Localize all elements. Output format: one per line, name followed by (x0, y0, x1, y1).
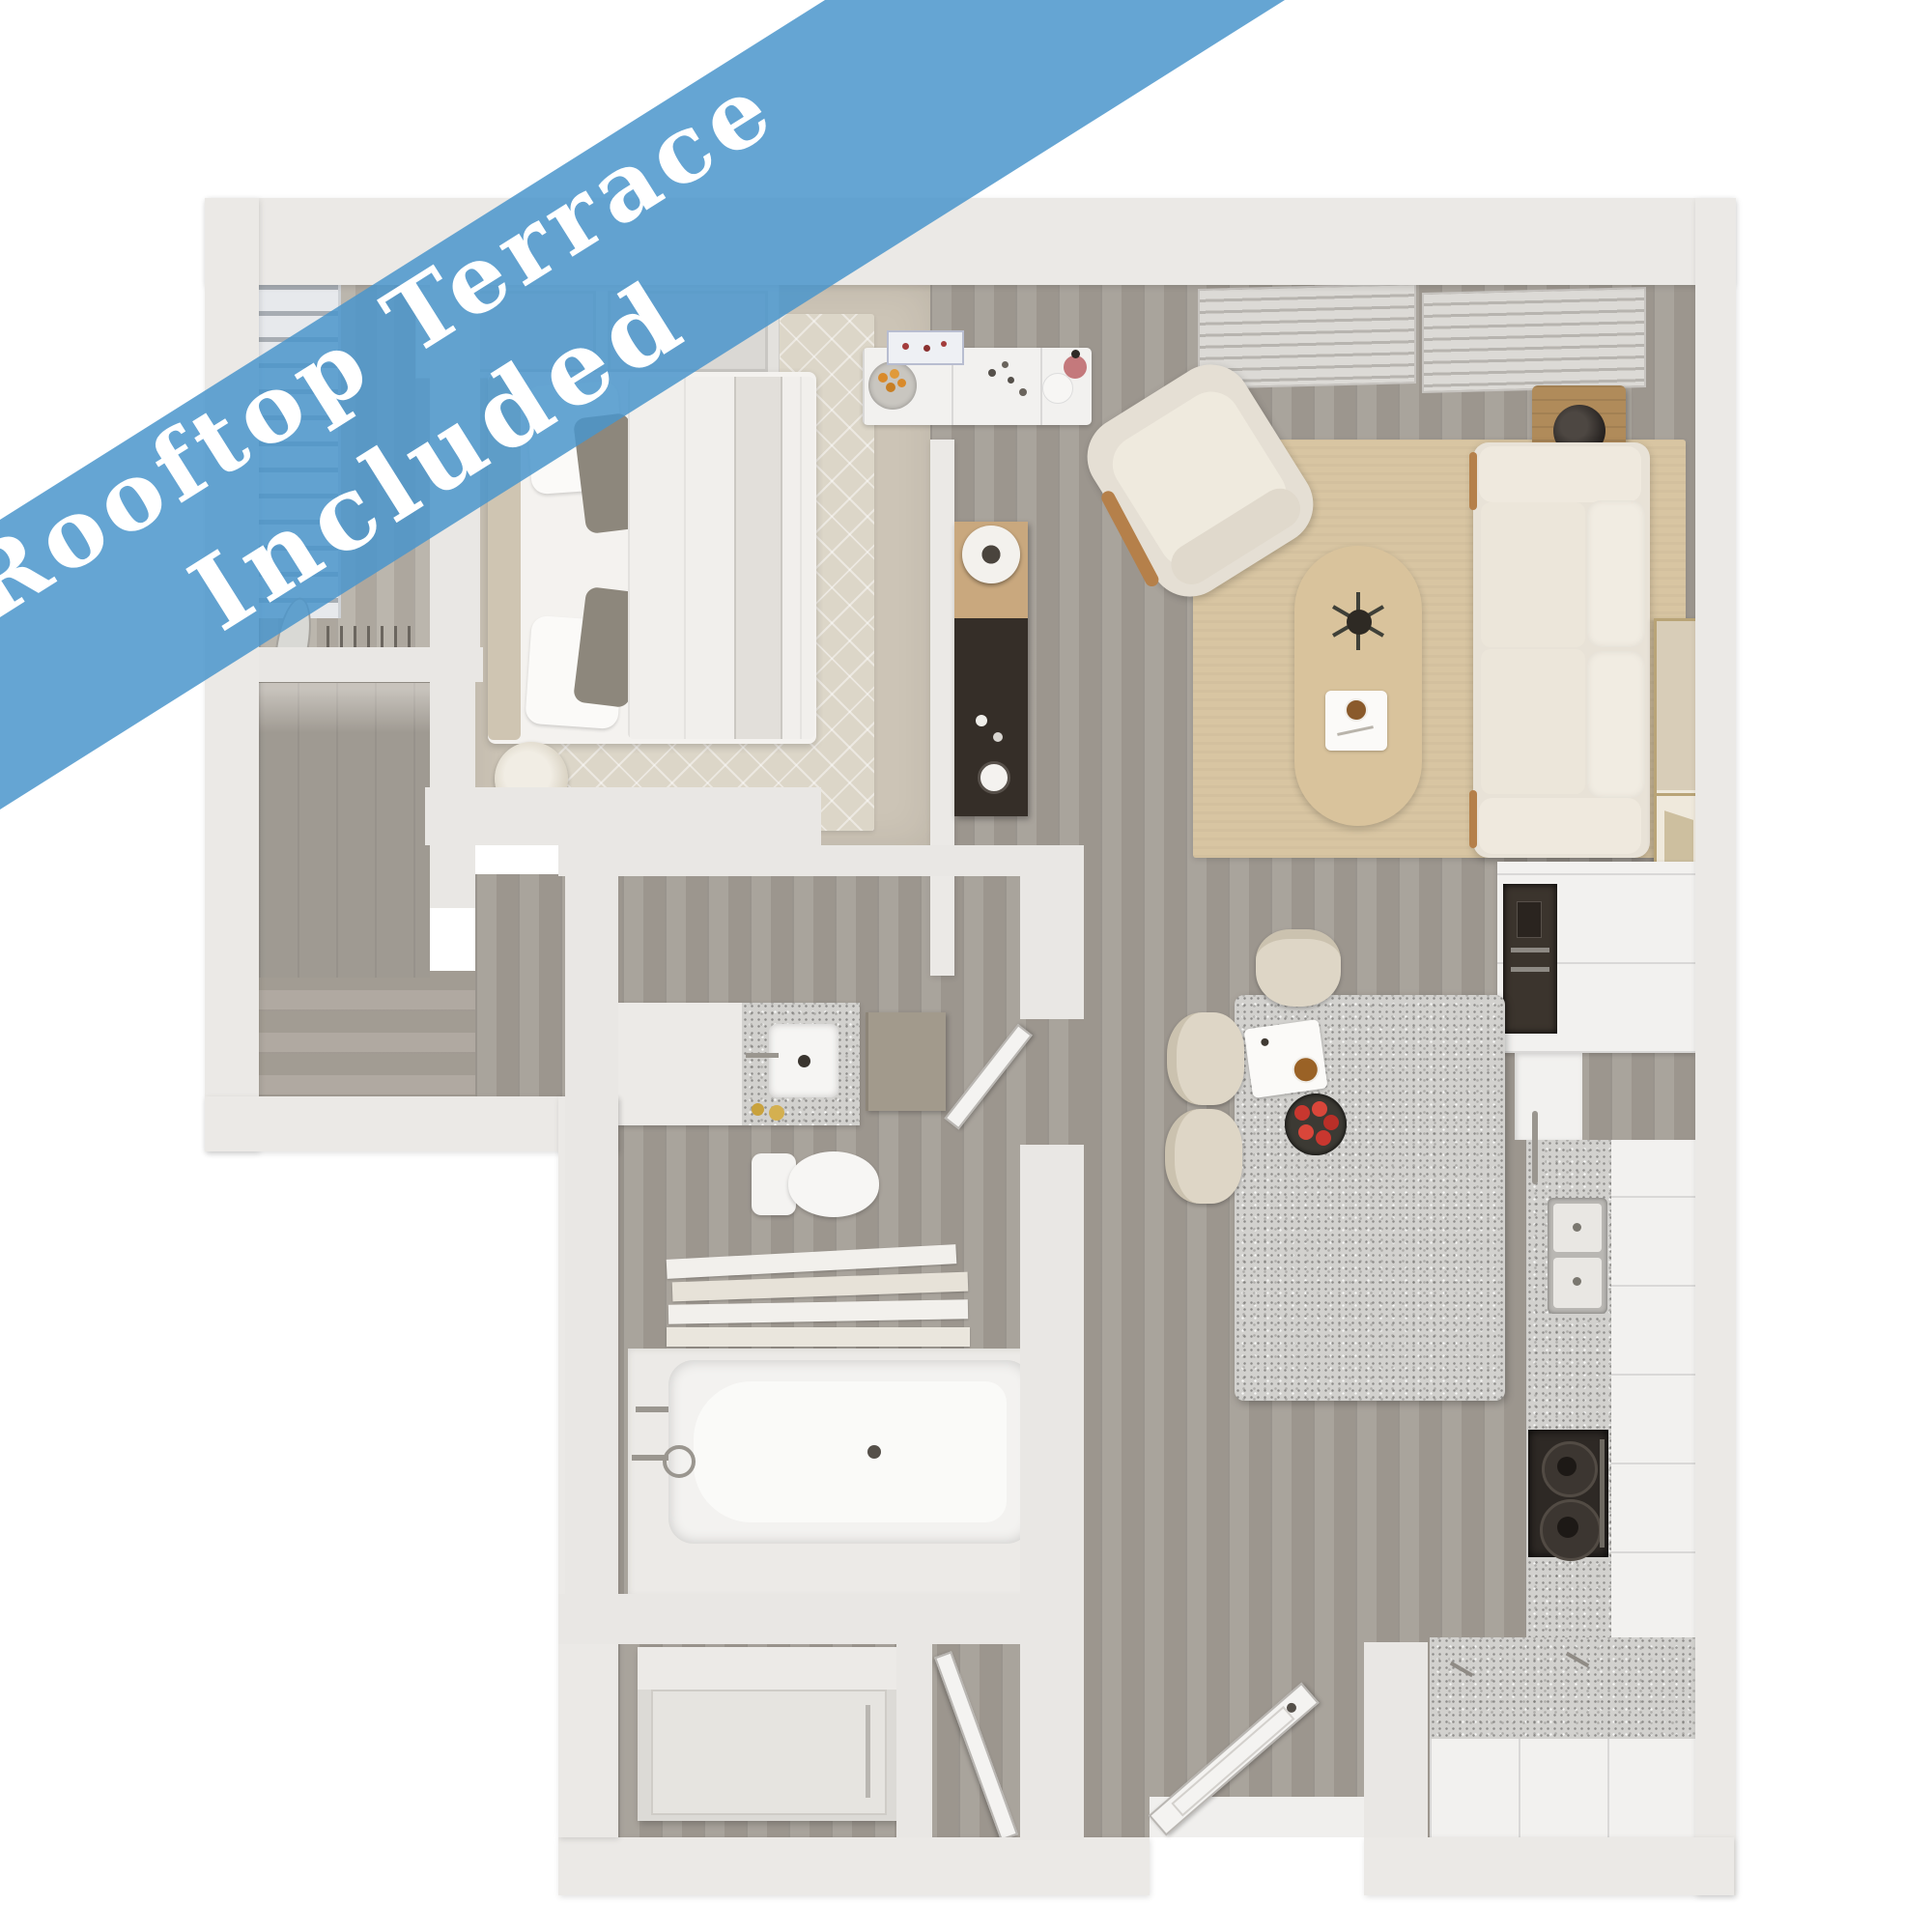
promo-banner: Rooftop Terrace Included (0, 0, 1932, 1932)
floor-plan-image: Rooftop Terrace Included (0, 0, 1932, 1932)
